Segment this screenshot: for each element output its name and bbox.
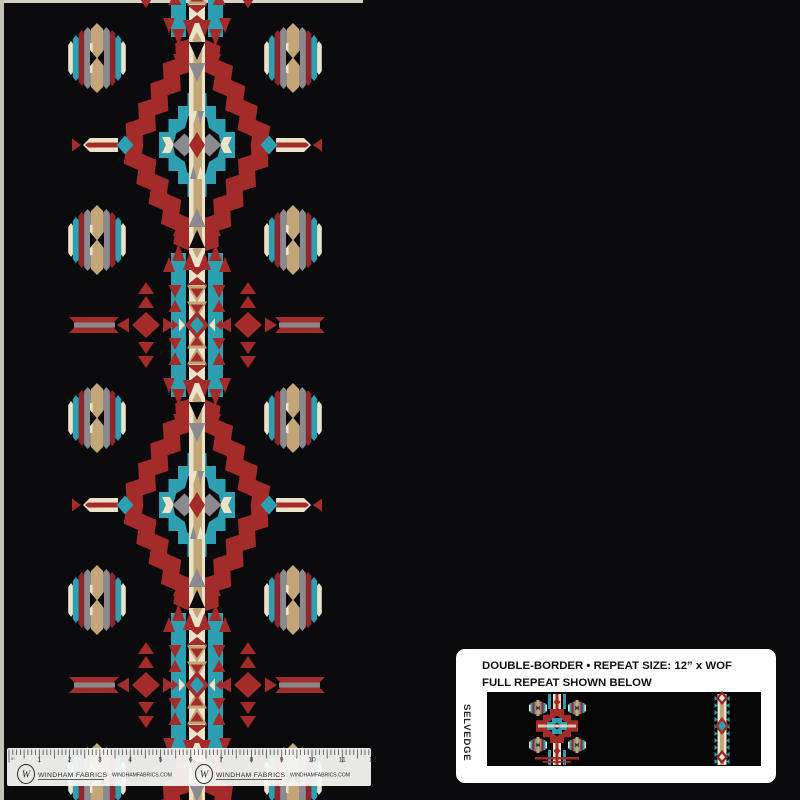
svg-text:WINDHAM FABRICS: WINDHAM FABRICS <box>216 772 286 779</box>
svg-text:SELVEDGE: SELVEDGE <box>461 704 472 761</box>
svg-text:3: 3 <box>98 757 102 764</box>
svg-text:FULL REPEAT SHOWN BELOW: FULL REPEAT SHOWN BELOW <box>482 677 652 689</box>
svg-text:12: 12 <box>369 757 377 764</box>
svg-text:8: 8 <box>250 757 254 764</box>
svg-text:DOUBLE-BORDER • REPEAT SIZE: 1: DOUBLE-BORDER • REPEAT SIZE: 12” x WOF <box>482 660 732 672</box>
svg-text:4: 4 <box>128 757 132 764</box>
svg-text:WINDHAMFABRICS.COM: WINDHAMFABRICS.COM <box>112 773 172 779</box>
svg-text:WINDHAMFABRICS.COM: WINDHAMFABRICS.COM <box>290 773 350 779</box>
svg-text:10: 10 <box>308 757 316 764</box>
svg-text:6: 6 <box>189 757 193 764</box>
svg-text:2: 2 <box>68 757 72 764</box>
svg-text:7: 7 <box>219 757 223 764</box>
svg-text:11: 11 <box>339 757 346 764</box>
svg-text:WINDHAM FABRICS: WINDHAM FABRICS <box>38 772 108 779</box>
svg-text:9: 9 <box>280 757 284 764</box>
svg-text:5: 5 <box>159 757 163 764</box>
svg-text:1: 1 <box>37 757 41 764</box>
svg-text:in: in <box>11 756 15 761</box>
